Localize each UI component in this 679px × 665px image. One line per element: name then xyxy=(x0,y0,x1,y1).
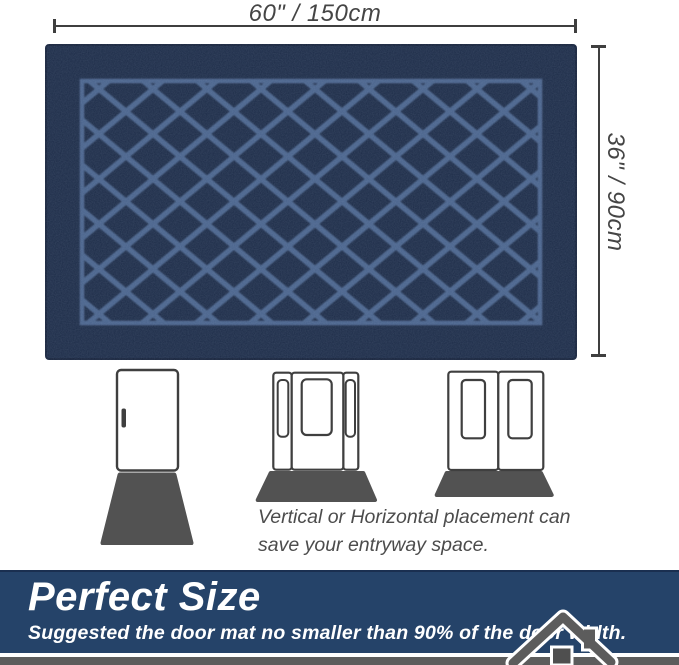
doormat-image xyxy=(45,44,577,360)
sidelight-door-horizontal-mat-icon xyxy=(258,373,375,500)
width-dimension-label: 60" / 150cm xyxy=(225,0,405,28)
house-window xyxy=(552,647,573,665)
placement-caption-line1: Vertical or Horizontal placement can xyxy=(258,504,571,532)
figure-mat-vertical xyxy=(103,475,191,543)
width-dimension-tick-left xyxy=(53,19,56,33)
right-door-leaf xyxy=(498,372,543,470)
door-panel xyxy=(117,370,178,471)
placement-caption-line2: save your entryway space. xyxy=(258,532,571,560)
door-handle-icon xyxy=(122,409,127,428)
ground-strip xyxy=(0,657,679,665)
height-dimension-label: 36" / 90cm xyxy=(601,122,629,262)
product-infographic: 60" / 150cm 36" / 90cm xyxy=(0,0,679,665)
height-dimension-line xyxy=(598,46,600,357)
figure-mat-horizontal xyxy=(437,473,552,495)
banner-footer-graphic xyxy=(0,605,679,665)
ground-highlight-line xyxy=(0,653,679,657)
double-door-horizontal-mat-icon xyxy=(437,372,552,495)
height-dimension-tick-bottom xyxy=(591,354,606,357)
center-door-panel xyxy=(292,373,344,470)
width-dimension-tick-right xyxy=(574,19,577,33)
mat-texture-overlay xyxy=(45,44,577,360)
width-dimension-line xyxy=(54,25,576,27)
figure-mat-horizontal xyxy=(258,473,375,500)
placement-caption: Vertical or Horizontal placement can sav… xyxy=(258,504,571,559)
house-icon xyxy=(513,617,611,665)
left-door-leaf xyxy=(448,372,498,470)
single-door-vertical-mat-icon xyxy=(103,370,191,543)
height-dimension-tick-top xyxy=(591,45,606,48)
